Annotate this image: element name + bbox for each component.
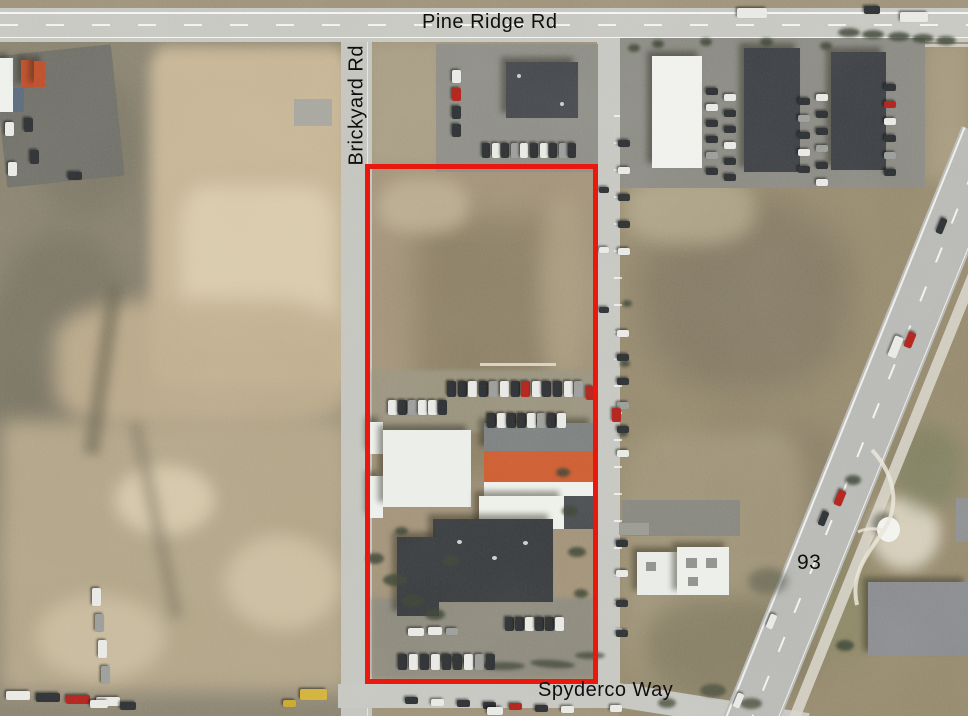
roof-unit xyxy=(686,558,697,568)
tr-col-b xyxy=(724,110,736,117)
tree xyxy=(862,30,884,39)
dozer-yellow xyxy=(283,700,296,707)
spyderco-row xyxy=(431,699,444,706)
tree xyxy=(622,300,632,307)
tr-col-d xyxy=(816,128,828,135)
car-yard xyxy=(8,162,17,176)
label-highway-93: 93 xyxy=(797,551,821,575)
tr-col-c xyxy=(798,98,810,105)
tr-col-a xyxy=(706,104,718,111)
street-col-3 xyxy=(616,570,628,577)
label-brickyard-rd: Brickyard Rd xyxy=(346,46,369,166)
tree xyxy=(845,475,861,485)
lot-row-north xyxy=(501,143,509,158)
street-col-1 xyxy=(618,248,630,255)
roof-unit xyxy=(688,577,698,586)
lot-col-west xyxy=(452,124,461,137)
car-top xyxy=(864,6,880,14)
street-col-west xyxy=(599,307,609,313)
spyderco-row xyxy=(457,700,470,707)
tr-col-d xyxy=(816,145,828,152)
driveway xyxy=(619,523,649,535)
street-col-2 xyxy=(617,378,629,385)
car-yard xyxy=(5,122,14,136)
tr-col-d xyxy=(816,94,828,101)
building-tr-dark1 xyxy=(744,48,800,172)
tree xyxy=(628,44,640,52)
truck-top xyxy=(737,8,767,18)
spyderco-row xyxy=(535,705,548,712)
lot-row-north xyxy=(492,143,500,158)
car-yard xyxy=(68,172,82,180)
tr-col-d xyxy=(816,111,828,118)
lot-row-north xyxy=(540,143,548,158)
tree xyxy=(760,38,773,46)
car-hwy xyxy=(935,217,947,234)
car-hwy xyxy=(765,613,777,630)
car xyxy=(120,702,136,710)
car xyxy=(610,705,622,712)
spyderco-row xyxy=(561,706,574,713)
roof-unit xyxy=(706,558,717,568)
lot-col-west xyxy=(452,106,461,119)
roof-vent xyxy=(517,74,521,78)
parking-yard-tl xyxy=(0,44,125,188)
tree xyxy=(888,32,910,41)
lot-row-north xyxy=(511,143,519,158)
tr-col-b xyxy=(724,174,736,181)
car xyxy=(90,700,108,708)
tr-col-e xyxy=(884,118,896,125)
truck-top xyxy=(900,12,928,22)
boneyard xyxy=(95,614,104,632)
building-er-small xyxy=(956,498,968,542)
lot-row-north xyxy=(568,143,576,158)
tree xyxy=(838,28,860,37)
bl-trucks xyxy=(6,691,30,700)
boneyard xyxy=(98,640,107,658)
lot-row-north xyxy=(482,143,490,158)
tr-col-b xyxy=(724,142,736,149)
tr-col-a xyxy=(706,136,718,143)
building-top-center-dark xyxy=(506,62,578,118)
street-col-3 xyxy=(616,600,628,607)
tr-col-e xyxy=(884,84,896,91)
street-col-2 xyxy=(617,354,629,361)
building-tl-white xyxy=(0,58,13,112)
parcel-boundary xyxy=(365,164,598,684)
tr-col-e xyxy=(884,101,896,108)
bl-trucks xyxy=(36,693,60,702)
street-col-west xyxy=(599,247,609,253)
tr-col-c xyxy=(798,115,810,122)
tr-col-e xyxy=(884,152,896,159)
tree xyxy=(700,684,726,697)
lot-row-north xyxy=(520,143,528,158)
spyderco-row xyxy=(509,703,522,710)
tree xyxy=(748,568,788,594)
car-yard xyxy=(24,118,33,132)
building-tr-dark2 xyxy=(831,52,886,170)
label-spyderco-way: Spyderco Way xyxy=(538,679,673,702)
street-col-1 xyxy=(618,194,630,201)
tr-col-d xyxy=(816,179,828,186)
trailer-orange xyxy=(21,60,33,88)
roof-unit xyxy=(646,562,656,571)
building-tr-white xyxy=(652,56,702,168)
roof-vent xyxy=(560,102,564,106)
lot-col-west xyxy=(452,70,461,83)
trailer-orange xyxy=(34,61,45,87)
tr-col-c xyxy=(798,149,810,156)
tree xyxy=(912,34,934,43)
dozer-yellow xyxy=(300,689,327,700)
tree xyxy=(820,42,832,50)
tr-col-a xyxy=(706,88,718,95)
tr-col-b xyxy=(724,94,736,101)
truck-hwy xyxy=(887,335,904,359)
tree xyxy=(936,36,956,45)
tr-col-a xyxy=(706,152,718,159)
street-col-2 xyxy=(617,426,629,433)
boneyard xyxy=(92,588,101,606)
tree xyxy=(700,38,712,46)
tr-col-b xyxy=(724,158,736,165)
car xyxy=(612,408,621,422)
street-col-3 xyxy=(616,540,628,547)
building-er-house xyxy=(868,582,968,656)
label-pine-ridge-rd: Pine Ridge Rd xyxy=(422,11,557,34)
car-hwy xyxy=(903,331,916,349)
street-col-2 xyxy=(617,330,629,337)
street-col-1 xyxy=(618,167,630,174)
tr-col-a xyxy=(706,120,718,127)
lot-row-north xyxy=(559,143,567,158)
street-col-1 xyxy=(618,221,630,228)
tr-col-e xyxy=(884,169,896,176)
car-hwy xyxy=(817,510,829,527)
street-col-1 xyxy=(618,140,630,147)
tree xyxy=(620,360,630,367)
aerial-map: Pine Ridge Rd Brickyard Rd Spyderco Way … xyxy=(0,0,968,716)
building-br-white-r xyxy=(677,547,729,595)
tr-col-e xyxy=(884,135,896,142)
tree xyxy=(740,698,762,709)
trailer-blue xyxy=(13,88,24,112)
tr-col-c xyxy=(798,166,810,173)
tr-col-b xyxy=(724,126,736,133)
street-col-3 xyxy=(616,630,628,637)
van xyxy=(487,707,503,715)
lot-col-west xyxy=(452,88,461,101)
street-col-2 xyxy=(617,450,629,457)
boneyard xyxy=(101,666,110,684)
lot-row-north xyxy=(549,143,557,158)
lot-row-north xyxy=(530,143,538,158)
tree xyxy=(652,40,664,48)
street-col-west xyxy=(599,187,609,193)
tr-col-d xyxy=(816,162,828,169)
pallet-stack xyxy=(294,99,332,126)
tree xyxy=(836,640,854,651)
building-br-white-l xyxy=(637,552,677,595)
bl-trucks xyxy=(66,695,90,704)
car-hwy xyxy=(833,489,846,507)
tr-col-c xyxy=(798,132,810,139)
tent-white xyxy=(877,517,900,542)
spyderco-row xyxy=(405,697,418,704)
car-yard xyxy=(30,150,39,164)
tr-col-a xyxy=(706,168,718,175)
